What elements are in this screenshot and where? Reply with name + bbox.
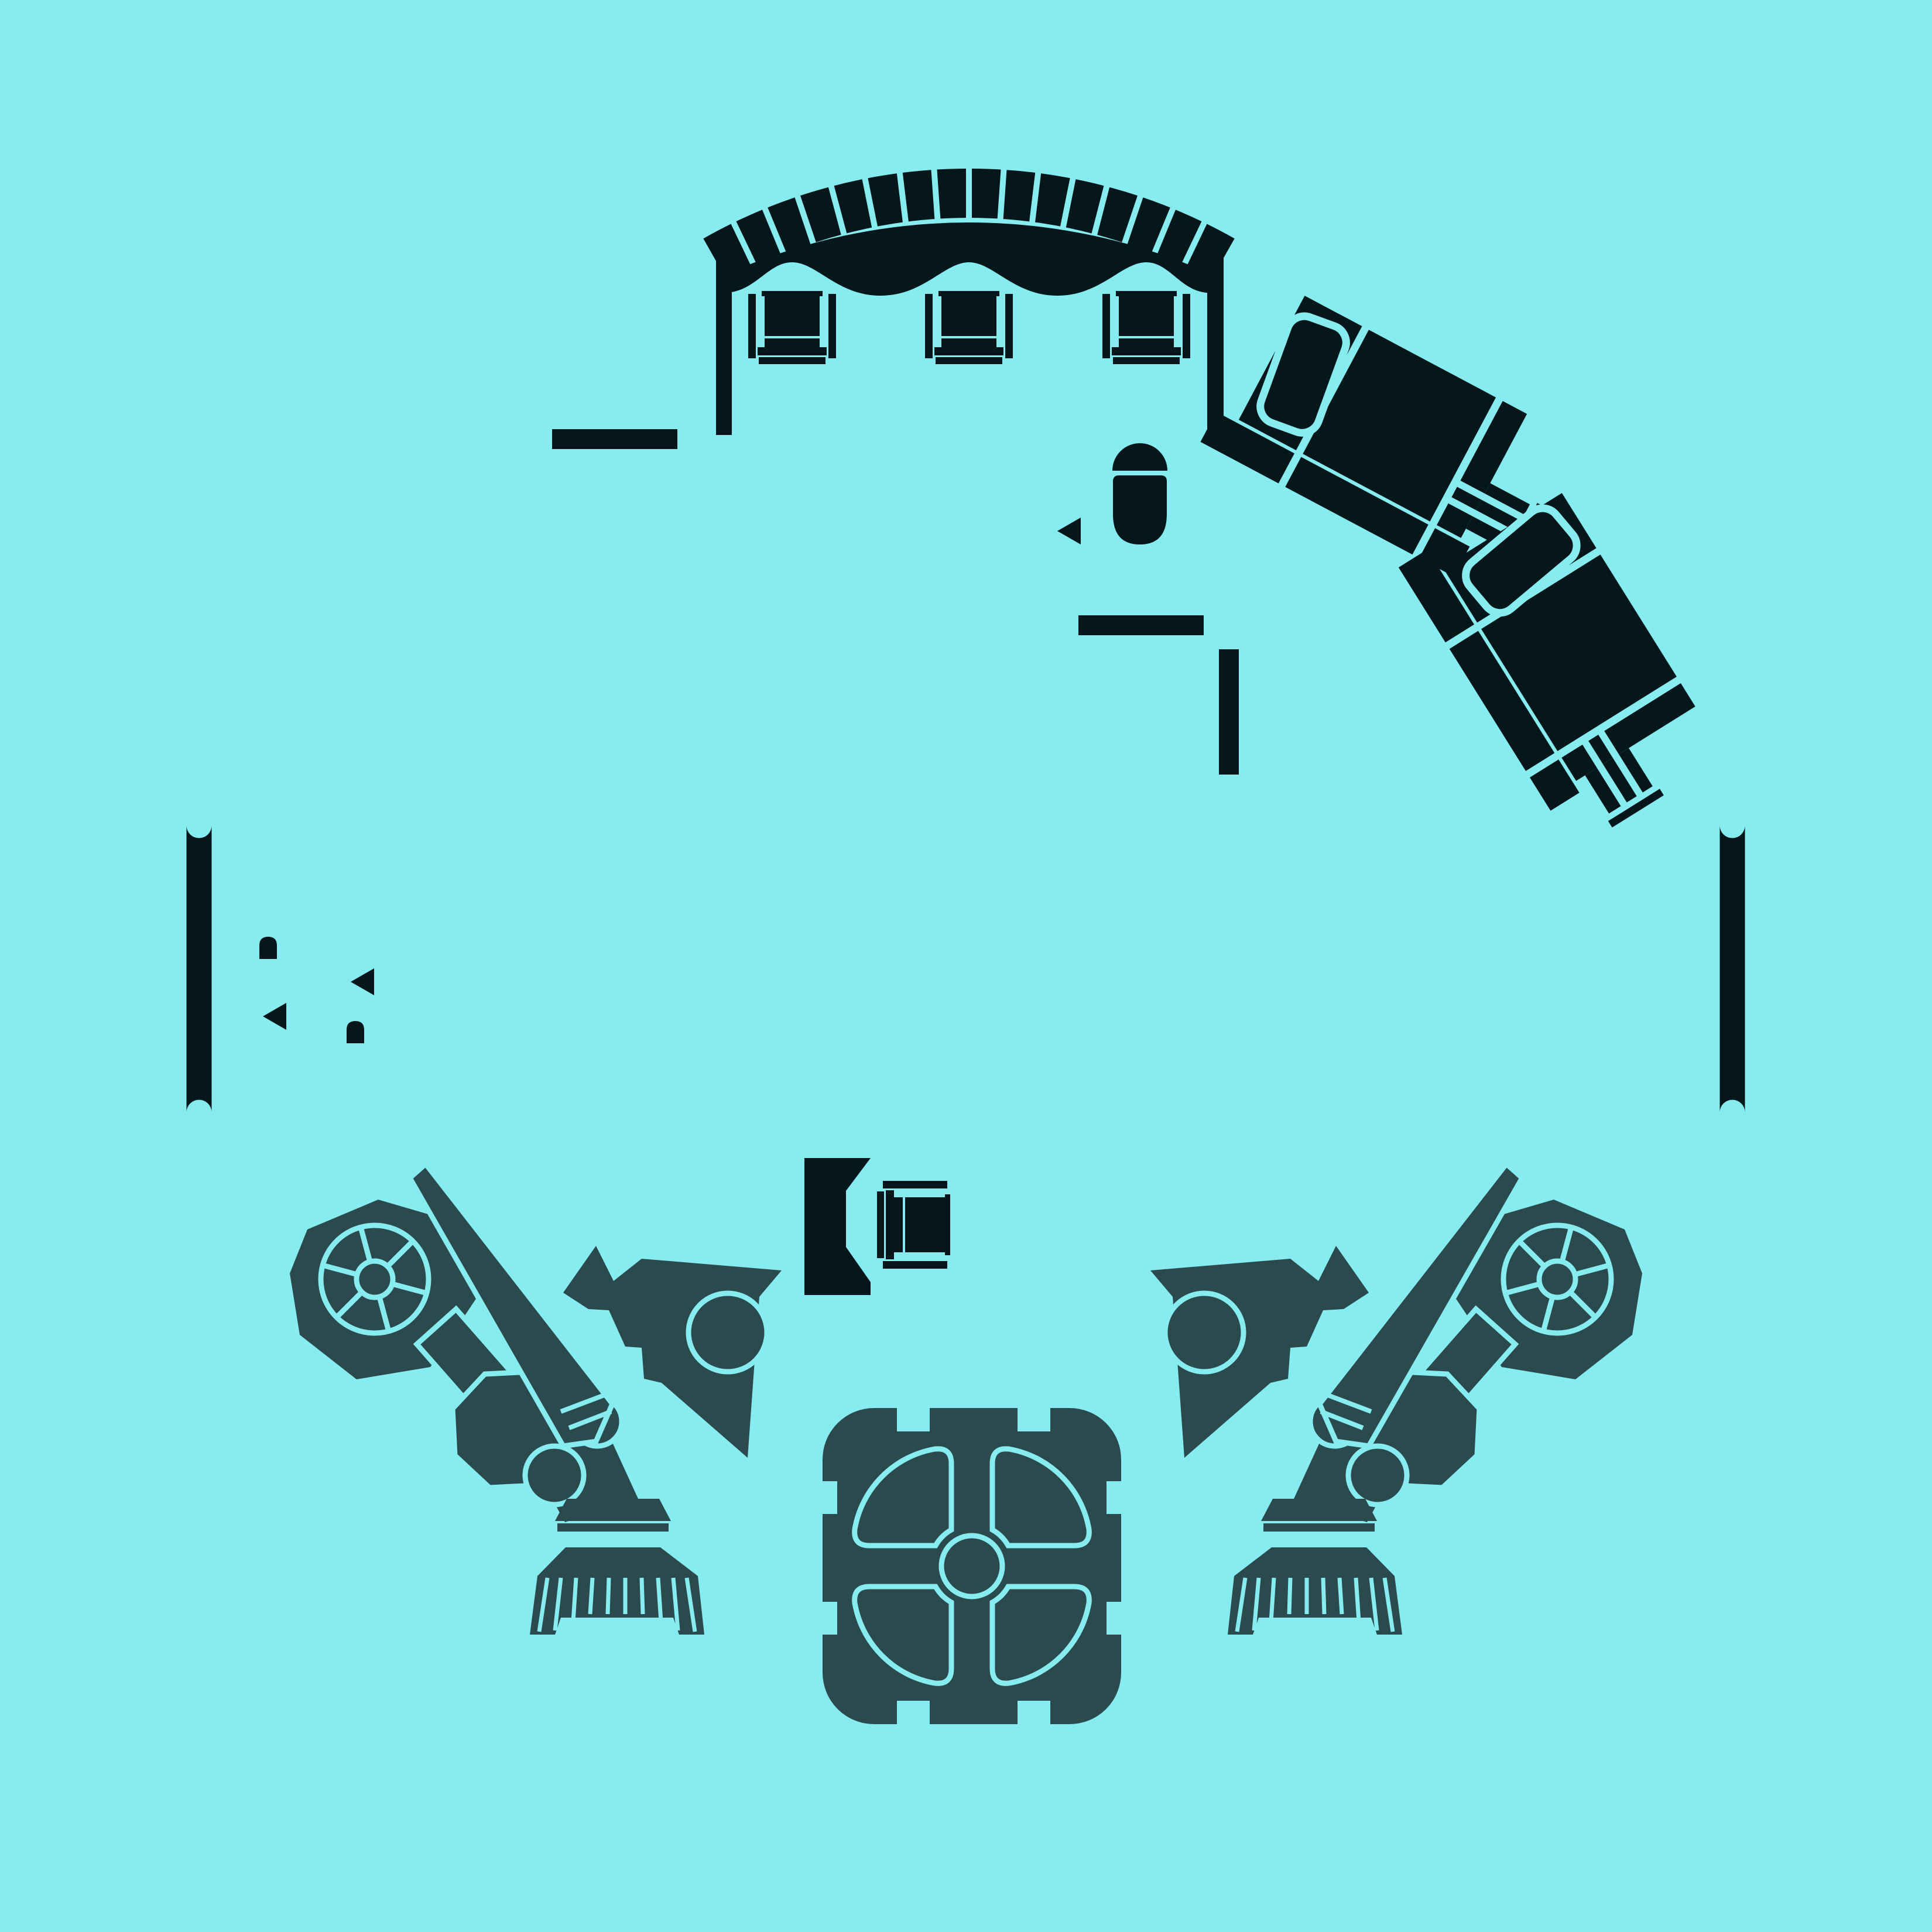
pillar-left xyxy=(187,813,212,1125)
arrow-token-1[interactable] xyxy=(1057,518,1081,544)
scene-objects xyxy=(187,165,1745,1727)
door-token-2[interactable] xyxy=(347,1021,364,1043)
engine-fan[interactable] xyxy=(811,1406,1132,1727)
wall-segment-top xyxy=(552,429,677,449)
bridge-chair-3[interactable] xyxy=(1102,291,1190,364)
bridge-chair-1[interactable] xyxy=(748,291,836,364)
arrow-token-3[interactable] xyxy=(263,1003,286,1030)
helm-chair[interactable] xyxy=(877,1181,950,1269)
door-token-1[interactable] xyxy=(259,937,277,959)
person-token[interactable] xyxy=(1112,443,1167,544)
helm-console[interactable] xyxy=(804,1158,871,1295)
turret-left[interactable] xyxy=(290,1164,782,1635)
wall-segment-vert xyxy=(1219,649,1239,775)
bridge-chair-2[interactable] xyxy=(925,291,1013,364)
arrow-token-2[interactable] xyxy=(351,968,374,995)
turret-right[interactable] xyxy=(1150,1164,1642,1635)
map-canvas xyxy=(0,0,1932,1932)
pillar-right xyxy=(1720,813,1745,1125)
wall-segment-mid xyxy=(1078,615,1204,635)
